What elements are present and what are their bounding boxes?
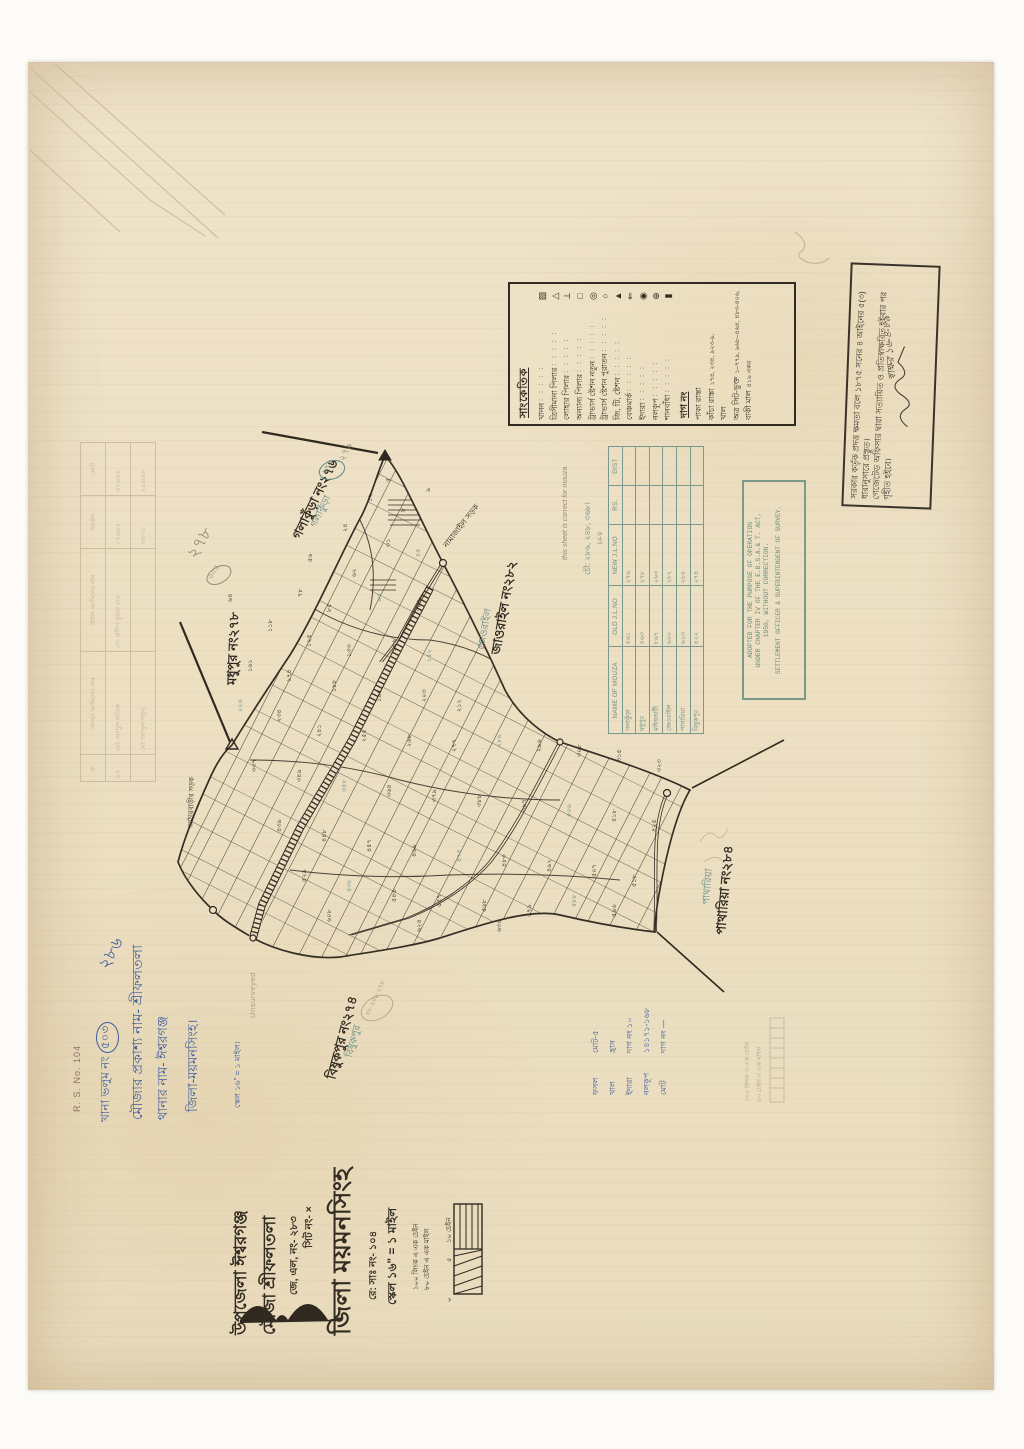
new-jl-no: ২৭৪ <box>690 525 704 586</box>
scale-note-chains: ৮০ চেইন এ এক মাইল <box>421 1180 431 1290</box>
legend-entry: খানন : : : : : ▨ <box>536 288 549 420</box>
dotted-leader: : : : : : <box>652 306 660 396</box>
pencil-note-english: this sheet is correct for mouza <box>562 448 576 560</box>
rs-number-pencil: R. S. No. 104 <box>72 1042 88 1112</box>
rs-no <box>676 486 690 525</box>
legend-entry: ত্রিসীমানা পিলার : : : : : △ <box>549 288 562 420</box>
dotted-leader: : : : : : <box>589 306 597 359</box>
title-rs-no: রে: সাঃ নং- ১০৪ <box>366 1150 380 1300</box>
legend-entry-list: খানন : : : : : ▨ ত্রিসীমানা পিলার : : : … <box>536 288 675 420</box>
summary-value: দাগ নং ১০ <box>624 1017 641 1053</box>
adoption-stamp: ADOPTED FOR THE PURPOSE OF OPERATION UND… <box>742 480 806 700</box>
legend-entry: অন্যান্য পিলার : : : : : □ <box>574 288 587 420</box>
pt-cell: ৩৭৬৷৪৮ <box>106 443 131 496</box>
legend-entry: ইদারা : : : : : ◉ <box>637 288 650 420</box>
legend-symbol-icon: ◉ <box>639 288 647 304</box>
pencil-note-numbers: চৌ: ২৮৬, ২৪৮, ৩৬৮। <box>582 470 594 575</box>
zila-name-line: জিলা-ময়মনসিংহ। <box>184 960 208 1112</box>
mouza-name: জেওরাইল <box>663 647 677 734</box>
dag-row: বাকী মাল ৪১৯ একর <box>744 288 757 420</box>
legend-entry: বেঞ্চমার্ক : : : : : ⇐ <box>624 288 637 420</box>
volume-value-circled: ৫০৩ <box>96 1022 119 1053</box>
legend-entry: ট্রাভার্স ষ্টেশন পুরাতন : : : : : ○ <box>599 288 612 420</box>
new-jl-no: ২৬৩ <box>649 525 663 586</box>
mouza-name: মাইজহাটী <box>649 647 663 734</box>
summary-value: মোট-৫ <box>590 1030 607 1053</box>
dotted-leader: : : : : : <box>664 306 672 393</box>
pencil-table-body: ৮৭ মো: আব্দুল লতিফ সে: প্রদীপ কুমার রায়… <box>106 443 156 782</box>
dist <box>690 447 704 486</box>
scale-note-blue: স্কেল ১৬" = ১ মাইল। <box>232 1016 244 1108</box>
summary-row: মোট দাগ নং — <box>658 1000 675 1095</box>
old-jl-no: ৫৬১ <box>622 586 636 647</box>
legend-entry-label: শানবাঁধা <box>664 395 672 420</box>
dag-row: পাকা রাস্তা <box>694 288 707 420</box>
stamp-line: ADOPTED FOR THE PURPOSE OF OPERATION <box>747 488 755 692</box>
old-jl-no: ৮৬৭ <box>649 586 663 647</box>
new-jl-no: ২৭৮ <box>636 525 650 586</box>
volume-line: খানা ভলুম নং ৫০৩ <box>96 990 122 1122</box>
summary-label: ফসল <box>590 1053 607 1095</box>
summary-label: ইদারা <box>624 1053 641 1095</box>
mouza-table-header-row: NAME OF MOUZAOLD J.L.NONEW J.L.NORS.DIST <box>609 447 623 734</box>
mouza-table-row: জেওরাইল ৬০০ ২৮২ <box>663 447 677 734</box>
summary-value: দাগ নং — <box>658 1020 675 1053</box>
pencil-note-date: 14-9 <box>597 503 607 545</box>
legend-symbol-icon: ○ <box>601 288 609 304</box>
title-sheet-no: সিট নং- × <box>302 1140 316 1248</box>
dotted-leader: : : : : : <box>551 306 559 366</box>
summary-row: খাল হ্রাস <box>607 1000 624 1095</box>
rs-no <box>636 486 650 525</box>
pt-cell: মো: আব্দুল লতিফ <box>106 652 131 755</box>
legend-entry-label: জি, টি, ষ্টেশন <box>614 377 622 420</box>
summary-label: খাল <box>607 1053 624 1095</box>
dag-row-label: অত্র সিট-ভুক্ত <box>731 377 744 420</box>
mouza-name: পাথারিয়া <box>676 647 690 734</box>
new-jl-no: ২৭৬ <box>622 525 636 586</box>
dotted-leader: : : : : : <box>538 306 546 401</box>
mouza-table-header: NAME OF MOUZA <box>609 647 623 734</box>
mouza-table-row: পাথারিয়া ৬১৩ ২৮৪ <box>676 447 690 734</box>
legend-entry: ট্রাভার্স ষ্টেশন নতুন : : : : : ◎ <box>586 288 599 420</box>
legend-symbol-icon: △ <box>551 288 559 304</box>
legend-symbol-icon: ⊕ <box>652 288 660 304</box>
mouza-table-header: RS. <box>609 486 623 525</box>
legend-symbol-icon: ⊥ <box>563 288 571 304</box>
dist <box>676 447 690 486</box>
legend-title: সাংকেতিক <box>515 288 534 418</box>
legend-entry-label: লোহার পিলার <box>563 375 571 420</box>
dag-row: অত্র সিট-ভুক্ত ১–৭৭৯, ৯৬৮–৪৬৪, ৪৮৩-৪০৬, <box>731 288 744 420</box>
legend-entry-label: ট্রাভার্স ষ্টেশন নতুন <box>589 361 597 420</box>
dag-row-value: ৪১৯ একর <box>744 361 755 388</box>
pencil-table-header: প্রধান আমিনের নাম <box>81 549 106 652</box>
dotted-leader: : : : : : <box>563 306 571 373</box>
dist <box>622 447 636 486</box>
mouza-table-row: বিষুকপুর ৪২২ ২৭৪ <box>690 447 704 734</box>
pencil-scale-note1: ১০০ লিংক এ এক চেইন <box>742 1026 751 1102</box>
pencil-scale-note2: ৮০ চেইন এ এক মাইল <box>754 1026 763 1102</box>
certification-box: সরকার কর্তৃক প্রদত্ত ক্ষমতা বলে ১৮৭৫ সনে… <box>841 262 940 509</box>
legend-entry: নলকূপ : : : : : ⊕ <box>649 288 662 420</box>
legend-symbol-icon: ⇐ <box>626 288 634 304</box>
old-jl-no: ৬০০ <box>663 586 677 647</box>
scanned-map-sheet: ৫১২৮২৪৩১৪৫৫৬৬২৭৮৮৫৯৩১০৪১১৮১২৫১৩৩১৪৬১৫২১৬… <box>0 0 1024 1449</box>
pt-cell: মো: আব্দুল গফুর <box>131 652 156 755</box>
summary-label: মোট <box>658 1053 675 1095</box>
rs-no <box>663 486 677 525</box>
stamp-line: UNDER CHAPTER IV OF THE E.B.S.A.& T. ACT… <box>755 488 763 692</box>
mouza-table-header: DIST <box>609 447 623 486</box>
legend-symbol-icon: ▮ <box>664 288 672 304</box>
mouza-table-header: NEW J.L.NO <box>609 525 623 586</box>
thana-name-line: থানার নাম- ঈশ্বরগঞ্জ <box>154 970 178 1120</box>
summary-label: নলকূপ <box>641 1053 658 1095</box>
title-zila: জিলা ময়মনসিংহ <box>322 1085 359 1335</box>
summary-row: নলকূপ ১৪১৭১-১৬৮ <box>641 1000 658 1095</box>
dotted-leader: : : : : : <box>626 306 634 391</box>
legend-symbol-icon: ▲ <box>614 288 622 304</box>
mouza-index-table: NAME OF MOUZAOLD J.L.NONEW J.L.NORS.DIST… <box>608 446 712 734</box>
certification-text: সরকার কর্তৃক প্রদত্ত ক্ষমতা বলে ১৮৭৫ সনে… <box>849 271 934 502</box>
title-mouza: মৌজা শ্রীফলতলা <box>257 1107 284 1335</box>
legend-symbol-icon: ◎ <box>589 288 597 304</box>
dist <box>663 447 677 486</box>
legend-entry-label: ট্রাভার্স ষ্টেশন পুরাতন <box>601 354 609 421</box>
legend-entry-label: অন্যান্য পিলার <box>576 374 584 420</box>
title-jl-no: জে, এল, নং- ২৮৩ <box>287 1137 302 1295</box>
dotted-leader: : : : : : <box>639 306 647 401</box>
new-jl-no: ২৮৪ <box>676 525 690 586</box>
rs-no <box>622 486 636 525</box>
scale-bar-label-0: ০ <box>443 1290 452 1302</box>
dist <box>649 447 663 486</box>
mouza-table-header: OLD J.L.NO <box>609 586 623 647</box>
legend-entry-label: ইদারা <box>639 403 647 420</box>
signature-squiggle <box>889 340 918 431</box>
scale-note-links: ১০০ লিংক এ এক চেইন <box>410 1180 420 1290</box>
dag-heading: দাগ নং <box>678 288 693 418</box>
pencil-amin-table: ক্র:খসড়া আমিনের নামপ্রধান আমিনের নামআবা… <box>80 430 232 782</box>
title-scale: স্কেল ১৬" = ১ মাইল <box>384 1143 401 1305</box>
pt-cell: ২৯৬৷৪৮ <box>131 443 156 496</box>
pt-cell: সে: প্রদীপ কুমার রায় <box>106 549 131 652</box>
legend-content: সাংকেতিক খানন : : : : : ▨ ত্রিসীমানা পিল… <box>514 288 790 420</box>
mouza-name-line: মৌজার প্রকাশ্য নাম- শ্রীফলতলা <box>126 902 152 1120</box>
dag-row-list: পাকা রাস্তা কাঁচা রাস্তা ১৭৪, ২৩৪, ৯২৩-৯… <box>694 288 757 420</box>
mouza-table-row: মাইজহাটী ৮৬৭ ২৬৩ <box>649 447 663 734</box>
pt-cell: ৮৭ <box>106 755 131 782</box>
old-jl-no: ৪৬৩ <box>636 586 650 647</box>
dag-row-value: ১৭৪, ২৩৪, ৯২৩-৯, <box>707 334 718 386</box>
pencil-table-header: খসড়া আমিনের নাম <box>81 652 106 755</box>
old-jl-no: ৪২২ <box>690 586 704 647</box>
pt-cell: ৭৷৬৭৮ <box>131 496 156 549</box>
legend-box: সাংকেতিক খানন : : : : : ▨ ত্রিসীমানা পিল… <box>508 282 796 426</box>
legend-entry-label: খানন <box>538 403 546 420</box>
handwritten-summary: ফসল মোট-৫ খাল হ্রাস ইদারা দাগ নং ১০ নলকূ… <box>590 1000 690 1095</box>
pt-cell <box>131 755 156 782</box>
dag-row: খাল <box>719 288 732 420</box>
dotted-leader: : : : : : <box>614 306 622 375</box>
legend-entry-label: নলকূপ <box>652 398 660 420</box>
dag-row-label: বাকী মাল <box>743 390 756 420</box>
volume-label: খানা ভলুম নং <box>98 1056 112 1122</box>
summary-value: হ্রাস <box>607 1040 624 1053</box>
pencil-table-header-row: ক্র:খসড়া আমিনের নামপ্রধান আমিনের নামআবা… <box>81 443 106 782</box>
stamp-line: 1950, WITHOUT CORRECTION. <box>763 488 771 692</box>
scale-bar-label-10chain: ১০ চেইন <box>443 1205 452 1243</box>
unsurveyed-pencil-note: Unsurveyed <box>248 962 258 1018</box>
mouza-table-row: মধুপুর ৪৬৩ ২৭৮ <box>636 447 650 734</box>
rs-no <box>690 486 704 525</box>
mouza-name: বিষুকপুর <box>690 647 704 734</box>
pt-cell <box>131 549 156 652</box>
mouza-table-row: গলাকুঁড়া ৫৬১ ২৭৬ <box>622 447 636 734</box>
title-upazila: উপজেলা ঈশ্বরগঞ্জ <box>228 1107 255 1335</box>
dag-row: কাঁচা রাস্তা ১৭৪, ২৩৪, ৯২৩-৯, <box>706 288 719 420</box>
legend-entry: শানবাঁধা : : : : : ▮ <box>662 288 675 420</box>
dag-row-label: পাকা রাস্তা <box>693 387 706 420</box>
legend-symbol-icon: ▨ <box>538 288 546 304</box>
stamp-text: ADOPTED FOR THE PURPOSE OF OPERATION UND… <box>747 488 797 692</box>
legend-entry: জি, টি, ষ্টেশন : : : : : ▲ <box>612 288 625 420</box>
dag-row-label: খাল <box>718 406 731 420</box>
mouza-table-body: গলাকুঁড়া ৫৬১ ২৭৬ মধুপুর ৪৬৩ ২৭৮ <box>622 447 704 734</box>
dag-row-value: ১–৭৭৯, ৯৬৮–৪৬৪, ৪৮৩-৪০৬, <box>732 290 743 373</box>
dag-row-label: কাঁচা রাস্তা <box>706 388 719 420</box>
summary-row: ইদারা দাগ নং ১০ <box>624 1000 641 1095</box>
dotted-leader: : : : : : <box>576 306 584 372</box>
legend-entry: লোহার পিলার : : : : : ⊥ <box>561 288 574 420</box>
scale-bar-label-5: ৫ <box>443 1250 452 1262</box>
pencil-table-header: আবাদ <box>81 496 106 549</box>
legend-entry-label: বেঞ্চমার্ক <box>626 393 634 420</box>
pt-cell: ২৭৬৷৪৮ <box>106 496 131 549</box>
legend-symbol-icon: □ <box>576 288 584 304</box>
pencil-table-row: ৮৭ মো: আব্দুল লতিফ সে: প্রদীপ কুমার রায়… <box>106 443 131 782</box>
new-jl-no: ২৮২ <box>663 525 677 586</box>
pencil-table-row: মো: আব্দুল গফুর ৭৷৬৭৮ ২৯৬৷৪৮ <box>131 443 156 782</box>
rs-no <box>649 486 663 525</box>
pencil-table-header: ক্র: <box>81 755 106 782</box>
legend-entry-label: ত্রিসীমানা পিলার <box>551 368 559 420</box>
pencil-table-header: মোট <box>81 443 106 496</box>
summary-value: ১৪১৭১-১৬৮ <box>641 1008 658 1053</box>
stamp-footer: SETTLEMENT OFFICER & SUPERINTENDENT OF S… <box>775 488 783 692</box>
mouza-name: মধুপুর <box>636 647 650 734</box>
old-jl-no: ৬১৩ <box>676 586 690 647</box>
summary-row: ফসল মোট-৫ <box>590 1000 607 1095</box>
dotted-leader: : : : : : <box>601 306 609 352</box>
mouza-name: গলাকুঁড়া <box>622 647 636 734</box>
dist <box>636 447 650 486</box>
